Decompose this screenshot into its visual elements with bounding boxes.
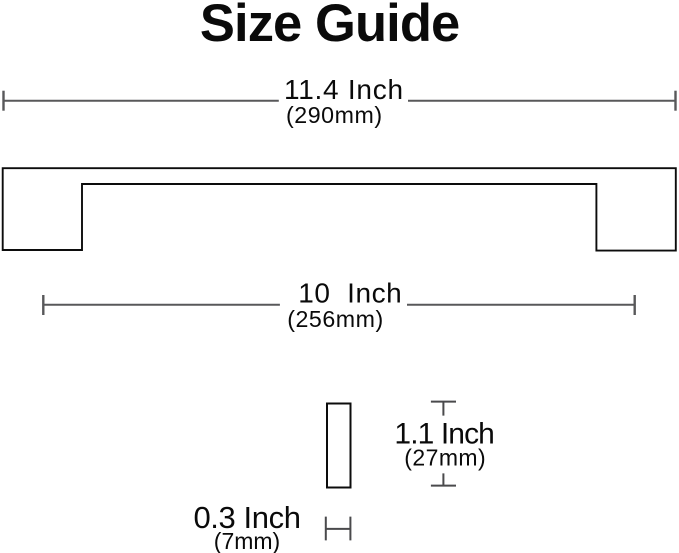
svg-text:(7mm): (7mm) xyxy=(214,528,280,553)
svg-text:Size Guide: Size Guide xyxy=(200,0,459,53)
svg-text:11.4 Inch: 11.4 Inch xyxy=(284,74,404,105)
svg-text:(256mm): (256mm) xyxy=(287,306,384,332)
svg-text:10 Inch: 10 Inch xyxy=(298,278,402,309)
svg-text:(290mm): (290mm) xyxy=(286,102,383,128)
svg-text:(27mm): (27mm) xyxy=(404,445,486,471)
